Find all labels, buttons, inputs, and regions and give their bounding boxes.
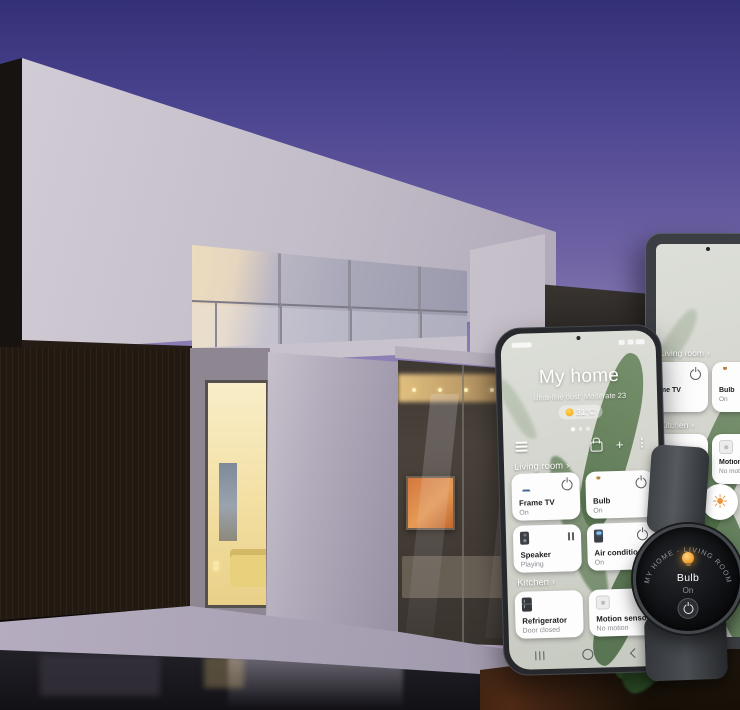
device-status: Playing xyxy=(521,560,575,569)
bulb-icon xyxy=(592,477,604,490)
ceiling-light xyxy=(490,388,494,392)
wifi-icon xyxy=(619,339,625,344)
motion-sensor-icon xyxy=(596,595,610,609)
device-status: No motion xyxy=(719,468,740,475)
device-name: Motion sensor xyxy=(719,459,740,466)
bulb-icon xyxy=(682,552,694,566)
device-name: Refrigerator xyxy=(522,615,576,626)
tablet-card-frame-tv[interactable]: Frame TV On xyxy=(656,362,708,412)
nav-bar xyxy=(509,646,664,662)
power-icon[interactable] xyxy=(635,477,646,488)
tablet-card-motion-sensor[interactable]: Motion sensor No motion xyxy=(712,434,740,484)
motion-sensor-icon xyxy=(719,440,733,454)
smart-home-scene: Living room › Frame TV On Bulb On Kitche… xyxy=(0,0,740,710)
device-status: On xyxy=(519,508,573,517)
section-living-room[interactable]: Living room › xyxy=(514,460,570,473)
sun-scene-button[interactable]: ☀ xyxy=(702,484,738,520)
refrigerator-icon xyxy=(522,597,532,611)
power-icon[interactable] xyxy=(690,369,701,380)
section-label: Living room xyxy=(660,348,704,358)
sun-icon xyxy=(565,408,573,416)
lit-interior-window xyxy=(205,380,269,608)
chevron-right-icon: › xyxy=(552,577,555,588)
interior-sofa xyxy=(230,549,269,587)
pause-icon[interactable] xyxy=(568,532,574,540)
tablet-camera xyxy=(706,247,710,251)
menu-icon[interactable] xyxy=(515,442,527,451)
device-name: Bulb xyxy=(719,387,740,394)
watch-face: MY HOME - LIVING ROOM Bulb On xyxy=(633,524,740,634)
chevron-right-icon: › xyxy=(707,348,710,358)
power-icon xyxy=(683,604,693,614)
railing-post xyxy=(280,304,282,350)
more-options-icon[interactable]: ⋮ xyxy=(636,438,647,449)
tablet-card-bulb[interactable]: Bulb On xyxy=(712,362,740,412)
tablet-section-kitchen[interactable]: Kitchen › xyxy=(660,420,694,430)
section-kitchen[interactable]: Kitchen › xyxy=(517,577,555,589)
interior-lamp xyxy=(213,561,219,571)
glass-frame xyxy=(462,358,464,650)
home-icon[interactable] xyxy=(583,648,594,659)
chevron-right-icon: › xyxy=(691,420,694,430)
concrete-column xyxy=(266,350,400,646)
section-label: Kitchen xyxy=(517,577,549,589)
sun-icon: ☀ xyxy=(711,493,728,512)
add-icon[interactable]: + xyxy=(616,437,624,450)
water-reflection-warm xyxy=(204,656,244,688)
card-frame-tv[interactable]: Frame TV On xyxy=(511,472,580,521)
railing-post xyxy=(215,302,217,350)
living-room-cards-row-1: Frame TV On Bulb On xyxy=(511,470,654,521)
ceiling-light xyxy=(464,388,468,392)
status-bar xyxy=(512,337,645,349)
watch-power-button[interactable] xyxy=(678,598,699,619)
temperature-value: 31°C xyxy=(576,407,595,418)
dark-wood-wall xyxy=(0,345,192,625)
air-conditioner-icon xyxy=(594,529,603,542)
device-name: Frame TV xyxy=(519,497,573,508)
card-speaker[interactable]: Speaker Playing xyxy=(513,524,582,573)
recents-icon[interactable] xyxy=(535,651,545,660)
bulb-icon xyxy=(719,368,731,381)
back-icon[interactable] xyxy=(630,648,640,658)
watch-strap-top xyxy=(646,444,710,536)
device-status: Door closed xyxy=(523,626,577,635)
status-time xyxy=(512,342,532,348)
signal-icon xyxy=(627,339,633,344)
card-refrigerator[interactable]: Refrigerator Door closed xyxy=(515,590,584,639)
section-label: Living room xyxy=(514,461,563,473)
device-name: Bulb xyxy=(593,495,647,506)
ceiling-light xyxy=(412,388,416,392)
tv-icon xyxy=(518,479,533,491)
watch-device-name: Bulb xyxy=(636,572,740,584)
device-status: On xyxy=(593,506,647,515)
tablet-section-living-room[interactable]: Living room › xyxy=(660,348,710,358)
page-title: My home xyxy=(501,364,657,390)
power-icon[interactable] xyxy=(561,479,572,490)
section-label: Kitchen xyxy=(660,420,688,430)
home-shortcut-icon[interactable] xyxy=(591,441,603,451)
device-status: On xyxy=(719,396,740,403)
battery-icon xyxy=(636,339,645,344)
water-reflection xyxy=(40,654,160,696)
chevron-right-icon: › xyxy=(566,460,569,471)
device-name: Speaker xyxy=(520,549,574,560)
watch-device-status: On xyxy=(636,586,740,595)
ceiling-light xyxy=(438,388,442,392)
card-bulb[interactable]: Bulb On xyxy=(585,470,654,519)
interior-artwork xyxy=(219,463,237,541)
speaker-icon xyxy=(520,532,529,545)
weather-chip[interactable]: 31°C xyxy=(558,404,602,419)
